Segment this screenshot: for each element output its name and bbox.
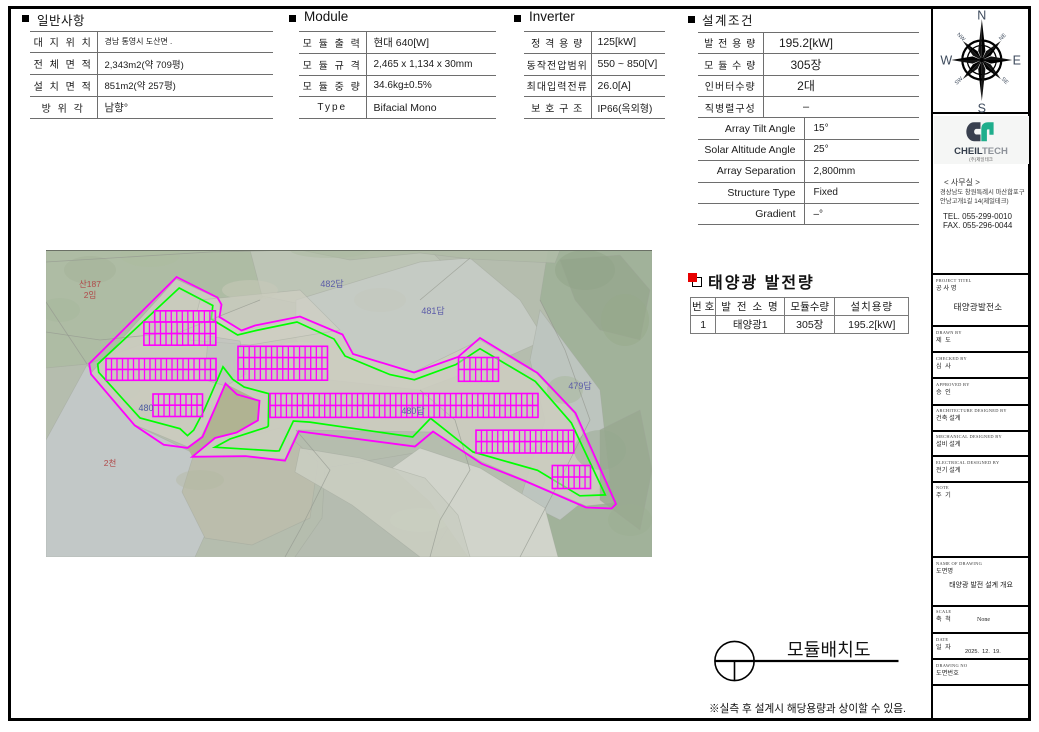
svg-text:SE: SE [1000, 76, 1010, 86]
svg-text:480답: 480답 [401, 405, 424, 416]
svg-text:482답: 482답 [320, 278, 343, 289]
svg-text:479답: 479답 [568, 380, 591, 391]
svg-text:S: S [978, 102, 986, 115]
svg-text:W: W [940, 54, 952, 68]
svg-text:N: N [977, 9, 986, 23]
svg-text:SW: SW [954, 75, 965, 86]
svg-text:NE: NE [998, 32, 1008, 42]
svg-text:2임: 2임 [84, 290, 97, 300]
svg-text:481답: 481답 [421, 305, 444, 316]
svg-text:NW: NW [955, 32, 966, 43]
svg-text:2천: 2천 [104, 458, 117, 468]
svg-text:E: E [1013, 54, 1021, 68]
svg-text:480: 480 [138, 403, 153, 413]
svg-text:산187: 산187 [79, 279, 101, 289]
